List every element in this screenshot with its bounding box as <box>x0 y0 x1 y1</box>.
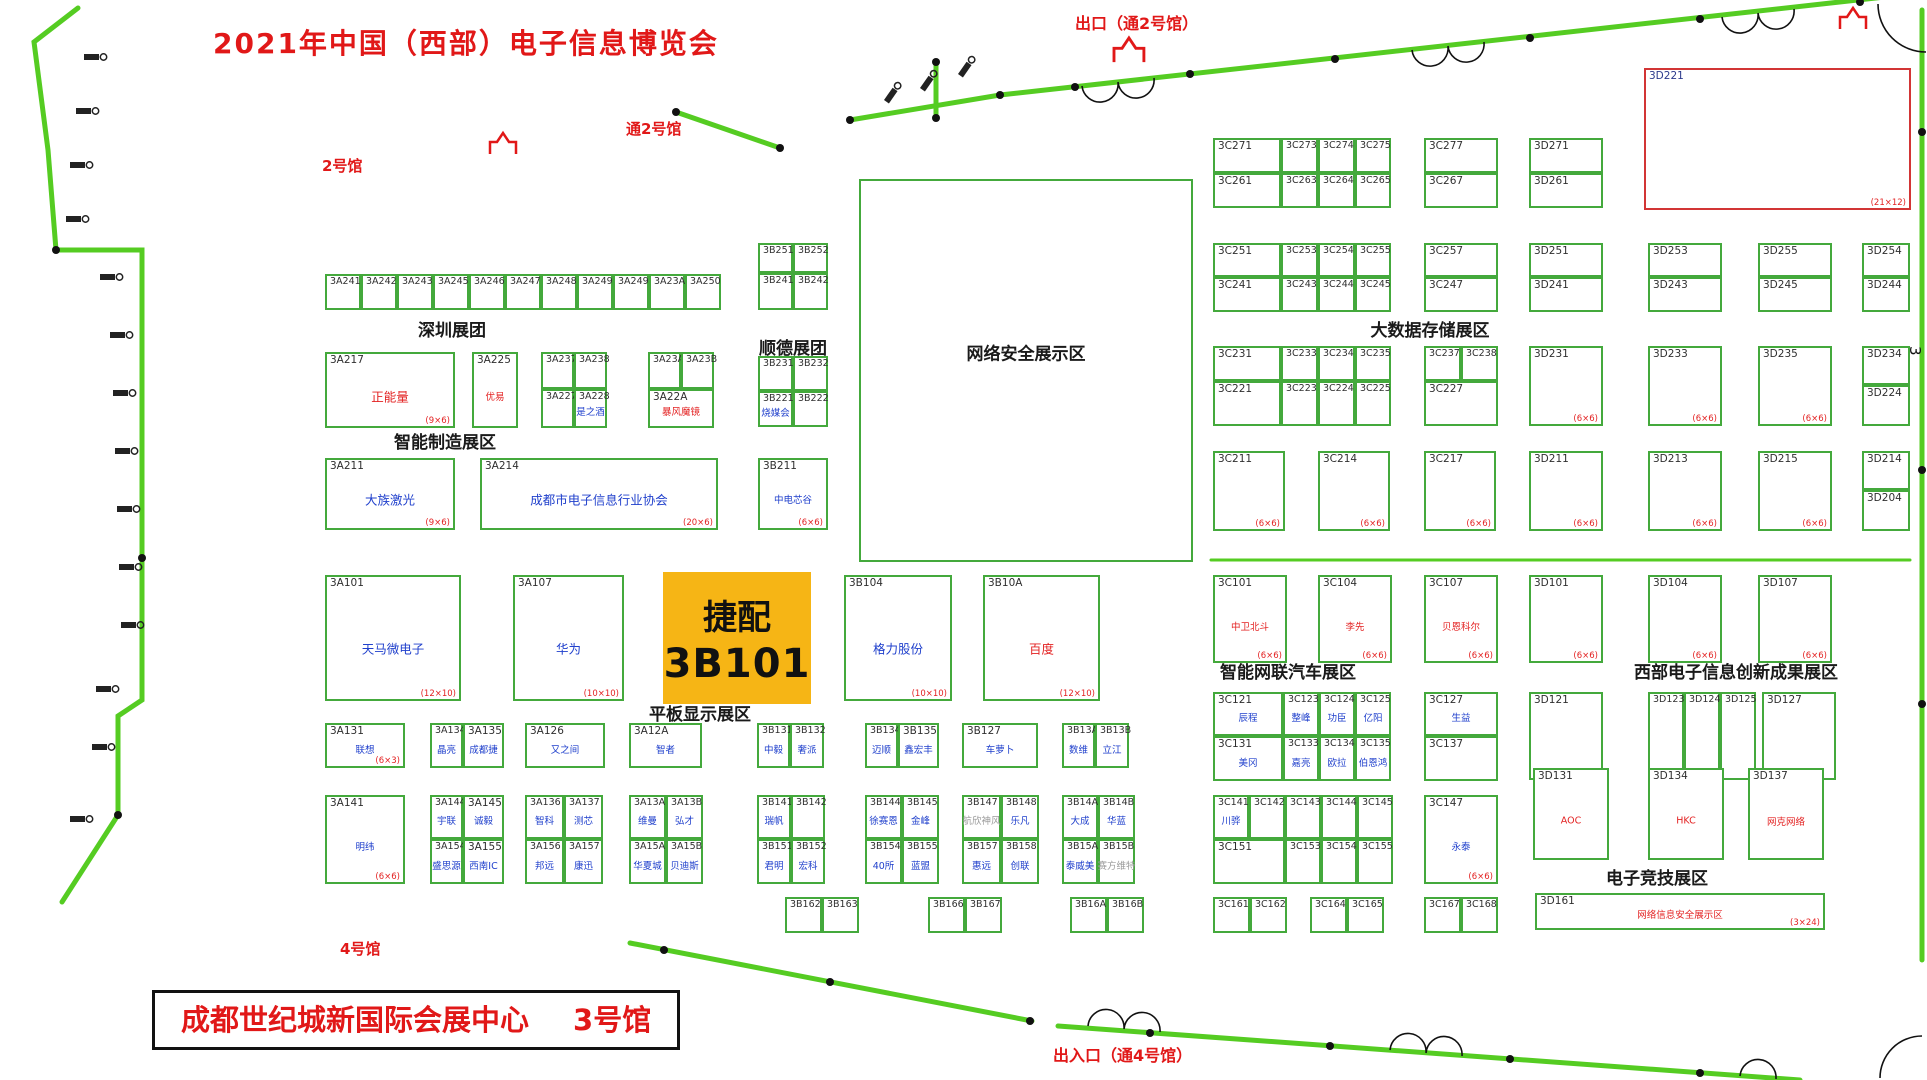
booth-id: 3C107 <box>1429 577 1463 589</box>
booth-3D271[interactable]: 3D271 <box>1529 138 1603 173</box>
booth-3D261[interactable]: 3D261 <box>1529 173 1603 208</box>
booth-size: (6×6) <box>1692 414 1717 424</box>
booth-3D161[interactable]: 3D161网络信息安全展示区(3×24) <box>1535 893 1825 930</box>
booth-3A246[interactable]: 3A246 <box>469 274 505 310</box>
booth-size: (3×24) <box>1790 918 1820 928</box>
booth-id: 3A238 <box>579 354 610 365</box>
booth-3C144[interactable]: 3C144 <box>1321 795 1357 839</box>
booth-3A248[interactable]: 3A248 <box>541 274 577 310</box>
booth-3C224[interactable]: 3C224 <box>1318 381 1355 426</box>
booth-3B15A[interactable]: 3B15A泰威美 <box>1062 839 1098 884</box>
booth-3A126[interactable]: 3A126又之间 <box>525 723 605 768</box>
booth-id: 3B132 <box>795 725 826 736</box>
booth-3C247[interactable]: 3C247 <box>1424 277 1498 312</box>
booth-name: 伯恩鸿 <box>1359 755 1388 769</box>
page-title: 2021年中国（西部）电子信息博览会 <box>213 22 719 62</box>
booth-3C277[interactable]: 3C277 <box>1424 138 1498 173</box>
booth-id: 3A136 <box>530 797 561 808</box>
booth-name: 优易 <box>485 389 504 403</box>
booth-name: 金峰 <box>911 813 930 827</box>
booth-3A245[interactable]: 3A245 <box>433 274 469 310</box>
booth-3C233[interactable]: 3C233 <box>1281 346 1318 381</box>
highlight-booth-name: 捷配 <box>703 590 771 639</box>
booth-3C167[interactable]: 3C167 <box>1424 897 1461 933</box>
booth-3D121[interactable]: 3D121 <box>1529 692 1603 780</box>
booth-3C261[interactable]: 3C261 <box>1213 173 1281 208</box>
booth-3B154[interactable]: 3B15440所 <box>865 839 902 884</box>
booth-3C104[interactable]: 3C104李先(6×6) <box>1318 575 1392 663</box>
booth-id: 3C233 <box>1286 348 1317 359</box>
booth-3C155[interactable]: 3C155 <box>1357 839 1393 884</box>
booth-3A15A[interactable]: 3A15A华夏城 <box>629 839 666 884</box>
booth-3A131[interactable]: 3A131联想(6×3) <box>325 723 405 768</box>
booth-name: 智者 <box>656 742 675 756</box>
booth-3B15B[interactable]: 3B15B赛方维特 <box>1098 839 1135 884</box>
booth-3C161[interactable]: 3C161 <box>1213 897 1250 933</box>
booth-id: 3C214 <box>1323 453 1357 465</box>
booth-3C263[interactable]: 3C263 <box>1281 173 1318 208</box>
booth-3A155[interactable]: 3A155西南IC <box>463 839 504 884</box>
booth-size: (21×12) <box>1871 198 1906 208</box>
booth-id: 3A245 <box>438 276 469 287</box>
booth-3B142[interactable]: 3B142 <box>791 795 825 839</box>
booth-3D101[interactable]: 3D101(6×6) <box>1529 575 1603 663</box>
booth-3B211[interactable]: 3B211中电芯谷(6×6) <box>758 458 828 530</box>
booth-3A247[interactable]: 3A247 <box>505 274 541 310</box>
booth-3A214[interactable]: 3A214成都市电子信息行业协会(20×6) <box>480 458 718 530</box>
booth-3A144[interactable]: 3A144宇联 <box>430 795 463 839</box>
booth-3D215[interactable]: 3D215(6×6) <box>1758 451 1832 531</box>
booth-id: 3A243 <box>402 276 433 287</box>
booth-3B135[interactable]: 3B135鑫宏丰 <box>898 723 939 768</box>
booth-3A135[interactable]: 3A135成都捷 <box>463 723 504 768</box>
booth-3A217[interactable]: 3A217正能量(9×6) <box>325 352 455 428</box>
booth-id: 3A246 <box>474 276 505 287</box>
booth-3C133[interactable]: 3C133嘉亮 <box>1283 736 1319 781</box>
booth-id: 3A131 <box>330 725 364 737</box>
booth-3D137[interactable]: 3D137网克网络 <box>1748 768 1824 860</box>
booth-3D213[interactable]: 3D213(6×6) <box>1648 451 1722 531</box>
booth-3D233[interactable]: 3D233(6×6) <box>1648 346 1722 426</box>
booth-id: 3D253 <box>1653 245 1688 257</box>
booth-3C142[interactable]: 3C142 <box>1249 795 1285 839</box>
booth-name: 生益 <box>1451 710 1470 724</box>
booth-id: 3A225 <box>477 354 511 366</box>
booth-3B151[interactable]: 3B151君明 <box>757 839 791 884</box>
booth-3C145[interactable]: 3C145 <box>1357 795 1393 839</box>
booth-id: 3C227 <box>1429 383 1463 395</box>
booth-id: 3C274 <box>1323 140 1354 151</box>
booth-3B252[interactable]: 3B252 <box>793 243 828 273</box>
booth-3C264[interactable]: 3C264 <box>1318 173 1355 208</box>
booth-id: 3A141 <box>330 797 364 809</box>
booth-id: 3A237 <box>546 354 577 365</box>
booth-3D251[interactable]: 3D251 <box>1529 243 1603 277</box>
booth-3C254[interactable]: 3C254 <box>1318 243 1355 277</box>
booth-3B145[interactable]: 3B145金峰 <box>902 795 939 839</box>
booth-id: 3C144 <box>1326 797 1357 808</box>
booth-name: 联想 <box>355 742 374 756</box>
booth-3A141[interactable]: 3A141明纬(6×6) <box>325 795 405 884</box>
booth-3A137[interactable]: 3A137测芯 <box>564 795 603 839</box>
booth-3A225[interactable]: 3A225优易 <box>472 352 518 428</box>
booth-3D204[interactable]: 3D204 <box>1862 490 1910 531</box>
booth-3C234[interactable]: 3C234 <box>1318 346 1355 381</box>
booth-id: 3C104 <box>1323 577 1357 589</box>
booth-3D125[interactable]: 3D125 <box>1720 692 1756 780</box>
booth-id: 3A23B <box>686 354 717 365</box>
booth-3C237[interactable]: 3C237 <box>1424 346 1461 381</box>
booth-id: 3B231 <box>763 358 794 369</box>
booth-3A250[interactable]: 3A250 <box>685 274 721 310</box>
booth-3B13B[interactable]: 3B13B立江 <box>1095 723 1129 768</box>
booth-3B104[interactable]: 3B104格力股份(10×10) <box>844 575 952 701</box>
booth-id: 3C238 <box>1466 348 1497 359</box>
booth-3C151[interactable]: 3C151 <box>1213 839 1285 884</box>
booth-3C168[interactable]: 3C168 <box>1461 897 1498 933</box>
booth-3D127[interactable]: 3D127 <box>1762 692 1836 780</box>
booth-3B144[interactable]: 3B144徐赛恩 <box>865 795 902 839</box>
booth-3D253[interactable]: 3D253 <box>1648 243 1722 277</box>
booth-name: 网克网络 <box>1767 814 1805 828</box>
booth-3C141[interactable]: 3C141川骅 <box>1213 795 1249 839</box>
booth-id: 3C121 <box>1218 694 1252 706</box>
booth-3B16A[interactable]: 3B16A <box>1070 897 1107 933</box>
booth-3C107[interactable]: 3C107贝恩科尔(6×6) <box>1424 575 1498 663</box>
booth-3B147[interactable]: 3B147航欣神风 <box>962 795 1001 839</box>
booth-id: 3A154 <box>435 841 466 852</box>
booth-3B127[interactable]: 3B127车萝卜 <box>962 723 1038 768</box>
booth-id: 3C168 <box>1466 899 1497 910</box>
booth-id: 3A157 <box>569 841 600 852</box>
booth-id: 3C221 <box>1218 383 1252 395</box>
floor-plan: 3 2021年中国（西部）电子信息博览会 2号馆 通2号馆 出口（通2号馆） 4… <box>0 0 1927 1080</box>
booth-3A12A[interactable]: 3A12A智者 <box>629 723 702 768</box>
booth-3A13A[interactable]: 3A13A维曼 <box>629 795 666 839</box>
booth-id: 3A126 <box>530 725 564 737</box>
area-network-security[interactable]: 网络安全展示区 <box>859 179 1193 562</box>
booth-3A237[interactable]: 3A237 <box>541 352 574 389</box>
booth-3C275[interactable]: 3C275 <box>1355 138 1391 173</box>
booth-id: 3C265 <box>1360 175 1391 186</box>
booth-3D107[interactable]: 3D107(6×6) <box>1758 575 1832 663</box>
booth-id: 3D215 <box>1763 453 1798 465</box>
booth-name: 乐凡 <box>1010 813 1029 827</box>
booth-id: 3A214 <box>485 460 519 472</box>
booth-3C101[interactable]: 3C101中卫北斗(6×6) <box>1213 575 1287 663</box>
booth-id: 3C273 <box>1286 140 1317 151</box>
booth-name: 暴风魔镜 <box>662 404 700 418</box>
booth-name: 整峰 <box>1291 710 1310 724</box>
booth-3A156[interactable]: 3A156邦远 <box>525 839 564 884</box>
booth-3C214[interactable]: 3C214(6×6) <box>1318 451 1390 531</box>
booth-3A154[interactable]: 3A154盛思源 <box>430 839 463 884</box>
label-exit-top: 出口（通2号馆） <box>1075 10 1198 34</box>
booth-3C225[interactable]: 3C225 <box>1355 381 1391 426</box>
label-hall4: 4号馆 <box>340 938 380 959</box>
booth-3A136[interactable]: 3A136智科 <box>525 795 564 839</box>
booth-3C217[interactable]: 3C217(6×6) <box>1424 451 1496 531</box>
booth-3B162[interactable]: 3B162 <box>785 897 822 933</box>
booth-3C231[interactable]: 3C231 <box>1213 346 1281 381</box>
booth-id: 3C253 <box>1286 245 1317 256</box>
booth-3D231[interactable]: 3D231(6×6) <box>1529 346 1603 426</box>
booth-name: 格力股份 <box>873 638 923 657</box>
booth-name: 美冈 <box>1238 755 1257 769</box>
booth-3C251[interactable]: 3C251 <box>1213 243 1281 277</box>
booth-3D255[interactable]: 3D255 <box>1758 243 1832 277</box>
booth-3B10A[interactable]: 3B10A百度(12×10) <box>983 575 1100 701</box>
booth-name: 烧媒会 <box>761 405 790 419</box>
booth-size: (6×6) <box>1362 651 1387 661</box>
booth-3B163[interactable]: 3B163 <box>822 897 859 933</box>
booth-id: 3C231 <box>1218 348 1252 360</box>
booth-3D243[interactable]: 3D243 <box>1648 277 1722 312</box>
booth-3C267[interactable]: 3C267 <box>1424 173 1498 208</box>
booth-size: (9×6) <box>425 518 450 528</box>
booth-3A242[interactable]: 3A242 <box>361 274 397 310</box>
booth-3B251[interactable]: 3B251 <box>758 243 793 273</box>
booth-id: 3D134 <box>1653 770 1688 782</box>
booth-3C127[interactable]: 3C127生益 <box>1424 692 1498 736</box>
booth-3B14B[interactable]: 3B14B华蓝 <box>1098 795 1135 839</box>
booth-3B152[interactable]: 3B152宏科 <box>791 839 825 884</box>
booth-id: 3C243 <box>1286 279 1317 290</box>
booth-3C143[interactable]: 3C143 <box>1285 795 1321 839</box>
booth-id: 3D255 <box>1763 245 1798 257</box>
booth-3C125[interactable]: 3C125亿阳 <box>1355 692 1391 736</box>
booth-id: 3A134 <box>435 725 466 736</box>
booth-id: 3C237 <box>1429 348 1460 359</box>
booth-3A238[interactable]: 3A238 <box>574 352 607 389</box>
booth-3B241[interactable]: 3B241 <box>758 273 793 310</box>
booth-3B141[interactable]: 3B141瑞帆 <box>757 795 791 839</box>
booth-3D224[interactable]: 3D224 <box>1862 385 1910 426</box>
venue-name: 成都世纪城新国际会展中心 <box>181 997 529 1039</box>
booth-3B134[interactable]: 3B134迈顺 <box>865 723 898 768</box>
booth-3A134[interactable]: 3A134晶亮 <box>430 723 463 768</box>
booth-3A241[interactable]: 3A241 <box>325 274 361 310</box>
booth-id: 3A144 <box>435 797 466 808</box>
booth-id: 3B222 <box>798 393 829 404</box>
booth-3C271[interactable]: 3C271 <box>1213 138 1281 173</box>
booth-3B166[interactable]: 3B166 <box>928 897 965 933</box>
venue-hall: 3号馆 <box>573 997 651 1039</box>
booth-3D211[interactable]: 3D211(6×6) <box>1529 451 1603 531</box>
booth-id: 3C261 <box>1218 175 1252 187</box>
booth-name: 永泰 <box>1451 839 1470 853</box>
booth-id: 3A248 <box>546 276 577 287</box>
booth-3C221[interactable]: 3C221 <box>1213 381 1281 426</box>
booth-3B221[interactable]: 3B221烧媒会 <box>758 391 793 427</box>
booth-3C134[interactable]: 3C134欧拉 <box>1319 736 1355 781</box>
booth-3A227[interactable]: 3A227 <box>541 389 574 428</box>
booth-3B155[interactable]: 3B155蓝盟 <box>902 839 939 884</box>
booth-3D123[interactable]: 3D123 <box>1648 692 1684 780</box>
booth-3D254[interactable]: 3D254 <box>1862 243 1910 277</box>
booth-id: 3A13A <box>634 797 665 808</box>
booth-3C211[interactable]: 3C211(6×6) <box>1213 451 1285 531</box>
booth-id: 3B104 <box>849 577 883 589</box>
booth-3C131[interactable]: 3C131美冈 <box>1213 736 1283 781</box>
booth-id: 3B158 <box>1006 841 1037 852</box>
booth-3A101[interactable]: 3A101天马微电子(12×10) <box>325 575 461 701</box>
booth-3C238[interactable]: 3C238 <box>1461 346 1498 381</box>
booth-3D124[interactable]: 3D124 <box>1684 692 1720 780</box>
zone-label: 深圳展团 <box>418 316 486 341</box>
booth-3B222[interactable]: 3B222 <box>793 391 828 427</box>
booth-3B13A[interactable]: 3B13A数维 <box>1062 723 1095 768</box>
booth-3C253[interactable]: 3C253 <box>1281 243 1318 277</box>
booth-name: 创联 <box>1010 858 1029 872</box>
booth-3D245[interactable]: 3D245 <box>1758 277 1832 312</box>
booth-3D244[interactable]: 3D244 <box>1862 277 1910 312</box>
booth-name: 数维 <box>1069 742 1088 756</box>
booth-3A211[interactable]: 3A211大族激光(9×6) <box>325 458 455 530</box>
booth-id: 3C275 <box>1360 140 1391 151</box>
booth-name: 贝迪斯 <box>670 858 699 872</box>
booth-3C265[interactable]: 3C265 <box>1355 173 1391 208</box>
booth-id: 3C155 <box>1362 841 1393 852</box>
booth-3A228[interactable]: 3A228是之酒 <box>574 389 607 428</box>
booth-size: (6×6) <box>375 872 400 882</box>
booth-size: (6×6) <box>1466 519 1491 529</box>
booth-3C164[interactable]: 3C164 <box>1310 897 1347 933</box>
booth-id: 3B144 <box>870 797 901 808</box>
booth-3B242[interactable]: 3B242 <box>793 273 828 310</box>
booth-id: 3D104 <box>1653 577 1688 589</box>
booth-id: 3C251 <box>1218 245 1252 257</box>
booth-name: 赛方维特 <box>1097 858 1135 872</box>
booth-3C123[interactable]: 3C123整峰 <box>1283 692 1319 736</box>
booth-3C162[interactable]: 3C162 <box>1250 897 1287 933</box>
booth-size: (12×10) <box>421 689 456 699</box>
booth-name: 中卫北斗 <box>1231 619 1269 633</box>
booth-id: 3A101 <box>330 577 364 589</box>
booth-id: 3B15B <box>1103 841 1134 852</box>
booth-3C274[interactable]: 3C274 <box>1318 138 1355 173</box>
booth-name: 航欣神风 <box>962 813 1000 827</box>
booth-id: 3D204 <box>1867 492 1902 504</box>
booth-name: 李先 <box>1345 619 1364 633</box>
booth-3D221[interactable]: 3D221(21×12) <box>1644 68 1911 210</box>
booth-id: 3D245 <box>1763 279 1798 291</box>
booth-3C124[interactable]: 3C124功臣 <box>1319 692 1355 736</box>
booth-3D104[interactable]: 3D104(6×6) <box>1648 575 1722 663</box>
booth-3C245[interactable]: 3C245 <box>1355 277 1391 312</box>
booth-3B158[interactable]: 3B158创联 <box>1001 839 1039 884</box>
booth-3A23B[interactable]: 3A23B <box>681 352 714 389</box>
booth-3B232[interactable]: 3B232 <box>793 356 828 391</box>
booth-id: 3B134 <box>870 725 901 736</box>
booth-id: 3A15A <box>634 841 665 852</box>
booth-3C243[interactable]: 3C243 <box>1281 277 1318 312</box>
booth-3C147[interactable]: 3C147永泰(6×6) <box>1424 795 1498 884</box>
booth-name: 宏科 <box>798 858 817 872</box>
booth-3C154[interactable]: 3C154 <box>1321 839 1357 884</box>
booth-3A243[interactable]: 3A243 <box>397 274 433 310</box>
booth-3B132[interactable]: 3B132奢派 <box>790 723 824 768</box>
booth-id: 3A23A <box>654 276 685 287</box>
booth-3C244[interactable]: 3C244 <box>1318 277 1355 312</box>
booth-id: 3C161 <box>1218 899 1249 910</box>
booth-3C135[interactable]: 3C135伯恩鸿 <box>1355 736 1391 781</box>
booth-3C153[interactable]: 3C153 <box>1285 839 1321 884</box>
booth-id: 3D234 <box>1867 348 1902 360</box>
booth-name: 惠远 <box>972 858 991 872</box>
booth-3A249[interactable]: 3A249 <box>613 274 649 310</box>
booth-3C241[interactable]: 3C241 <box>1213 277 1281 312</box>
booth-3C235[interactable]: 3C235 <box>1355 346 1391 381</box>
booth-id: 3C142 <box>1254 797 1285 808</box>
booth-3D214[interactable]: 3D214 <box>1862 451 1910 490</box>
booth-3B131[interactable]: 3B131中毅 <box>757 723 790 768</box>
booth-id: 3B14A <box>1067 797 1098 808</box>
booth-3B101[interactable]: 捷配3B101 <box>663 572 811 704</box>
booth-size: (6×6) <box>1802 651 1827 661</box>
booth-3D134[interactable]: 3D134HKC <box>1648 768 1724 860</box>
booth-name: HKC <box>1676 816 1696 827</box>
booth-3A22A[interactable]: 3A22A暴风魔镜 <box>648 389 714 428</box>
booth-3A145[interactable]: 3A145诚毅 <box>463 795 504 839</box>
booth-3B157[interactable]: 3B157惠远 <box>962 839 1001 884</box>
booth-3B16B[interactable]: 3B16B <box>1107 897 1144 933</box>
booth-3A23A[interactable]: 3A23A <box>648 352 681 389</box>
booth-3C255[interactable]: 3C255 <box>1355 243 1391 277</box>
booth-id: 3C247 <box>1429 279 1463 291</box>
booth-3B167[interactable]: 3B167 <box>965 897 1002 933</box>
booth-3B231[interactable]: 3B231 <box>758 356 793 391</box>
booth-3C227[interactable]: 3C227 <box>1424 381 1498 426</box>
booth-name: AOC <box>1561 816 1581 827</box>
booth-3C257[interactable]: 3C257 <box>1424 243 1498 277</box>
booth-3D234[interactable]: 3D234 <box>1862 346 1910 385</box>
booth-name: 40所 <box>873 858 895 872</box>
booth-id: 3C151 <box>1218 841 1252 853</box>
booth-id: 3C271 <box>1218 140 1252 152</box>
booth-id: 3A249 <box>618 276 649 287</box>
booth-name: 华夏城 <box>633 858 662 872</box>
booth-id: 3B251 <box>763 245 794 256</box>
booth-id: 3A12A <box>634 725 668 737</box>
booth-3D241[interactable]: 3D241 <box>1529 277 1603 312</box>
booth-3D131[interactable]: 3D131AOC <box>1533 768 1609 860</box>
booth-3C165[interactable]: 3C165 <box>1347 897 1384 933</box>
booth-3A23A[interactable]: 3A23A <box>649 274 685 310</box>
booth-id: 3B241 <box>763 275 794 286</box>
booth-3C121[interactable]: 3C121辰程 <box>1213 692 1283 736</box>
booth-3C223[interactable]: 3C223 <box>1281 381 1318 426</box>
booth-3B148[interactable]: 3B148乐凡 <box>1001 795 1039 839</box>
booth-id: 3A247 <box>510 276 541 287</box>
highlight-booth-id: 3B101 <box>664 641 811 687</box>
booth-3C273[interactable]: 3C273 <box>1281 138 1318 173</box>
booth-3B14A[interactable]: 3B14A大成 <box>1062 795 1098 839</box>
zone-label: 电子竞技展区 <box>1606 864 1708 889</box>
booth-id: 3A145 <box>468 797 502 809</box>
booth-id: 3D161 <box>1540 895 1575 907</box>
booth-3A107[interactable]: 3A107华为(10×10) <box>513 575 624 701</box>
booth-3A13B[interactable]: 3A13B弘才 <box>666 795 703 839</box>
booth-3D235[interactable]: 3D235(6×6) <box>1758 346 1832 426</box>
booth-3A249[interactable]: 3A249 <box>577 274 613 310</box>
booth-name: 西南IC <box>469 858 497 872</box>
booth-3A157[interactable]: 3A157康迅 <box>564 839 603 884</box>
booth-3A15B[interactable]: 3A15B贝迪斯 <box>666 839 703 884</box>
booth-id: 3A22A <box>653 391 687 403</box>
booth-name: 大成 <box>1070 813 1089 827</box>
booth-3C137[interactable]: 3C137 <box>1424 736 1498 781</box>
